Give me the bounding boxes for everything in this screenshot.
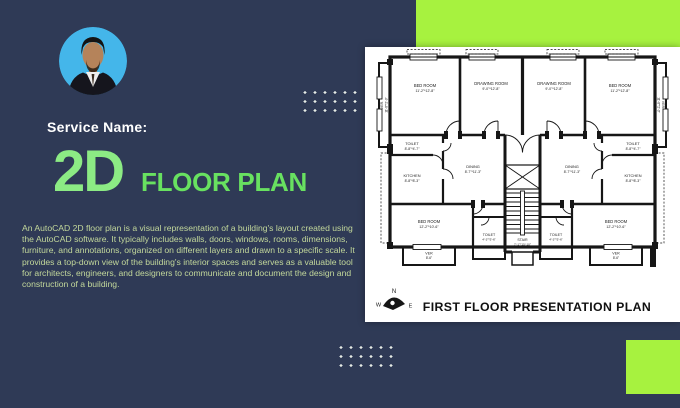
room-label: VER: [612, 252, 620, 256]
room-label: VER: [425, 252, 433, 256]
room-label: KITCHEN: [624, 173, 641, 178]
room-dims: 8'-8"*8'-3": [405, 179, 421, 183]
room-dims: 8'-7"*11'-3": [465, 170, 482, 174]
plan-title: FIRST FLOOR PRESENTATION PLAN: [423, 300, 651, 314]
title-floor-plan: FLOOR PLAN: [141, 169, 307, 195]
compass-west-label: W: [376, 303, 382, 309]
gig-banner: Service Name: 2D FLOOR PLAN An AutoCAD 2…: [0, 0, 680, 408]
portrait-photo: [59, 27, 127, 95]
room-dims: 8'-8"*8'-3": [626, 179, 642, 183]
room-label: BED ROOM: [414, 83, 437, 88]
room-dims: 11'-2"*12'-8": [416, 89, 436, 93]
floor-plan-drawing: BED ROOM 11'-2"*12'-8" DRAWING ROOM 9'-0…: [365, 47, 680, 322]
room-label: VER.: [380, 101, 384, 109]
room-label: BED ROOM: [609, 83, 632, 88]
room-dims: 11'-8"*2'-9": [385, 97, 389, 112]
dot-grid-decoration-bottom: [335, 342, 393, 369]
lime-accent-block-bottom: [626, 340, 680, 394]
room-dims: 12'-2"*10'-6": [606, 225, 626, 229]
room-label: VER.: [661, 101, 665, 109]
room-label: DINING: [466, 164, 480, 169]
room-label: BED ROOM: [605, 219, 628, 224]
room-dims: 7'-1"*15'-10": [514, 243, 531, 247]
staircase: [505, 165, 540, 235]
room-label: TOILET: [483, 233, 496, 237]
room-dims: 9'-0"*12'-8": [545, 87, 563, 91]
room-label: TOILET: [626, 141, 640, 146]
room-label: KITCHEN: [403, 173, 420, 178]
floor-plan-panel: BED ROOM 11'-2"*12'-8" DRAWING ROOM 9'-0…: [365, 47, 680, 322]
seller-avatar: [59, 27, 127, 95]
compass-rose-icon: N W E: [376, 289, 413, 310]
room-label: TOILET: [405, 141, 419, 146]
service-description: An AutoCAD 2D floor plan is a visual rep…: [22, 223, 362, 290]
room-dims: 8'-6": [426, 256, 432, 260]
room-label: DRAWING ROOM: [474, 81, 508, 86]
room-dims: 12'-2"*10'-6": [419, 225, 439, 229]
room-dims: 9'-0"*12'-8": [482, 87, 500, 91]
room-dims: 11'-8"*2'-9": [657, 97, 661, 112]
room-label: BED ROOM: [418, 219, 441, 224]
room-label: TOILET: [550, 233, 563, 237]
room-label: DINING: [565, 164, 579, 169]
room-label: DRAWING ROOM: [537, 81, 571, 86]
room-dims: 8'-8"*4'-7": [405, 147, 421, 151]
room-dims: 4'-3"*5'-6": [482, 238, 496, 242]
lime-accent-bar-top: [416, 0, 680, 47]
compass-north-label: N: [392, 289, 396, 295]
room-dims: 4'-3"*5'-6": [549, 238, 563, 242]
room-dims: 8'-8"*4'-7": [626, 147, 642, 151]
room-dims: 8'-6": [613, 256, 619, 260]
service-name-label: Service Name:: [47, 119, 147, 135]
title-2d: 2D: [53, 143, 123, 201]
dot-grid-decoration-top: [299, 87, 357, 114]
room-dims: 11'-2"*12'-8": [611, 89, 631, 93]
room-label: STAIR: [517, 238, 528, 242]
room-dims: 8'-7"*11'-3": [564, 170, 581, 174]
compass-east-label: E: [409, 304, 413, 310]
